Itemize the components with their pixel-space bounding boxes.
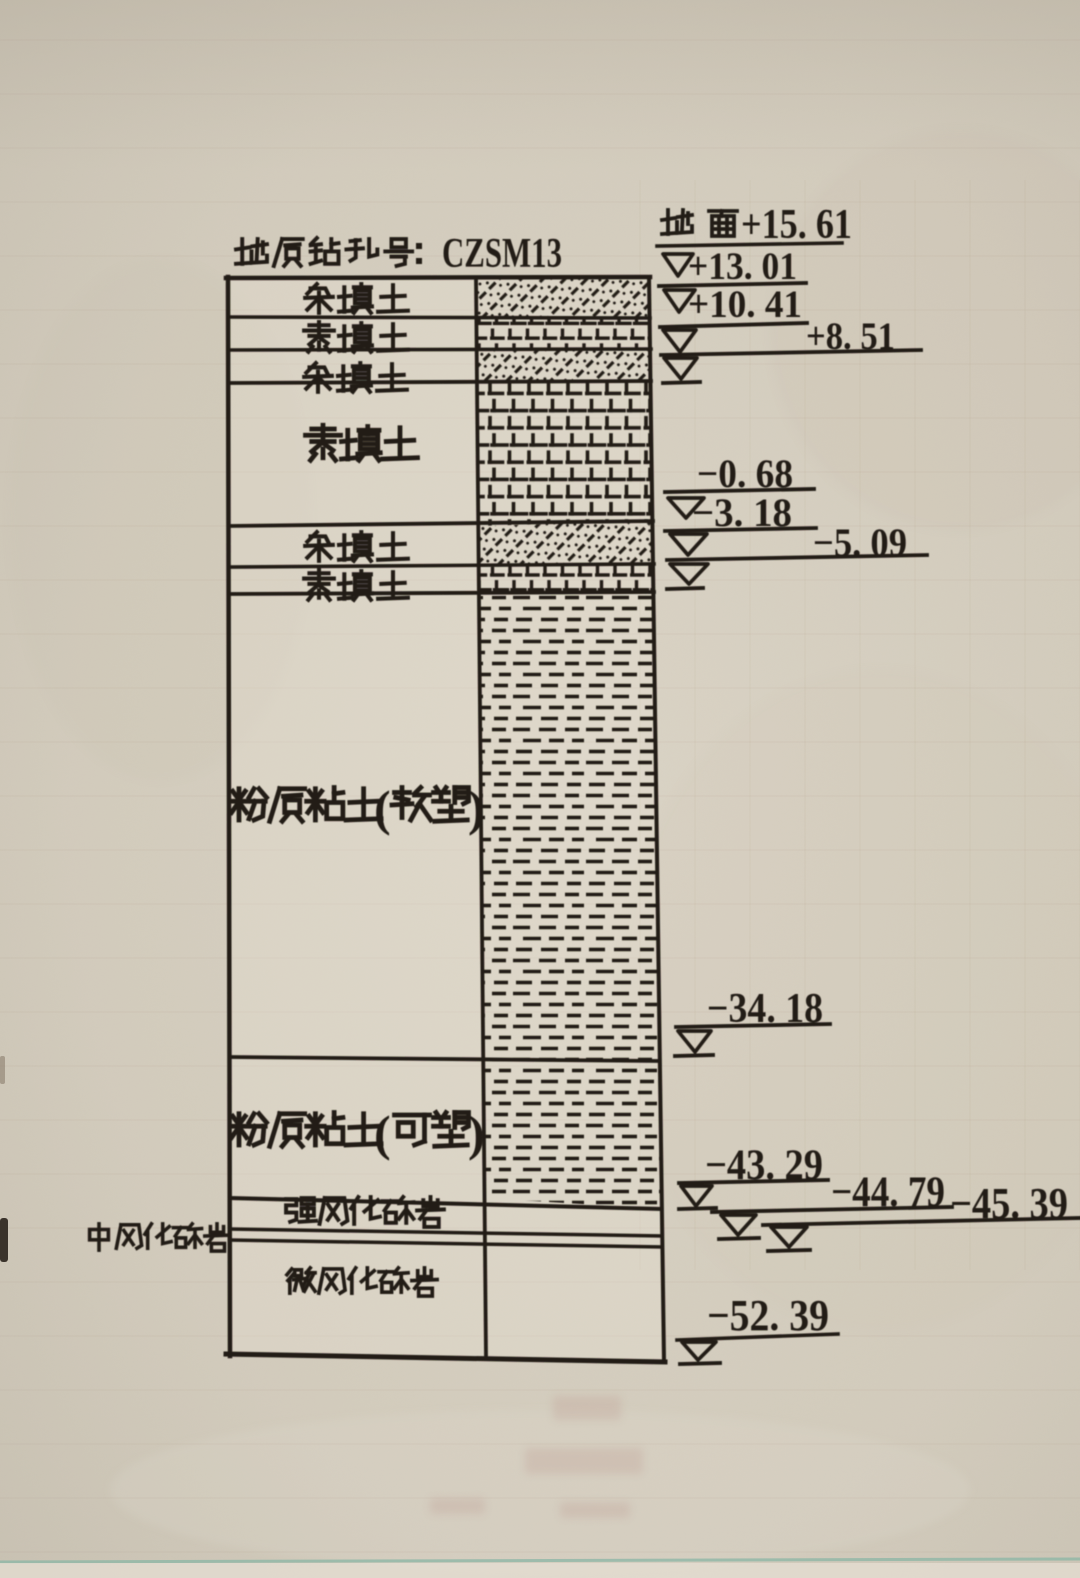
svg-text:+15. 61: +15. 61 xyxy=(741,202,852,248)
svg-text:CZSM13: CZSM13 xyxy=(442,231,562,277)
svg-text:): ) xyxy=(468,1105,485,1161)
svg-text:+13. 01: +13. 01 xyxy=(688,245,797,288)
svg-text:−52. 39: −52. 39 xyxy=(707,1291,829,1340)
svg-text:+10. 41: +10. 41 xyxy=(688,283,802,326)
svg-text:): ) xyxy=(468,780,485,836)
svg-text:(: ( xyxy=(374,780,391,836)
svg-text:(: ( xyxy=(374,1105,391,1161)
